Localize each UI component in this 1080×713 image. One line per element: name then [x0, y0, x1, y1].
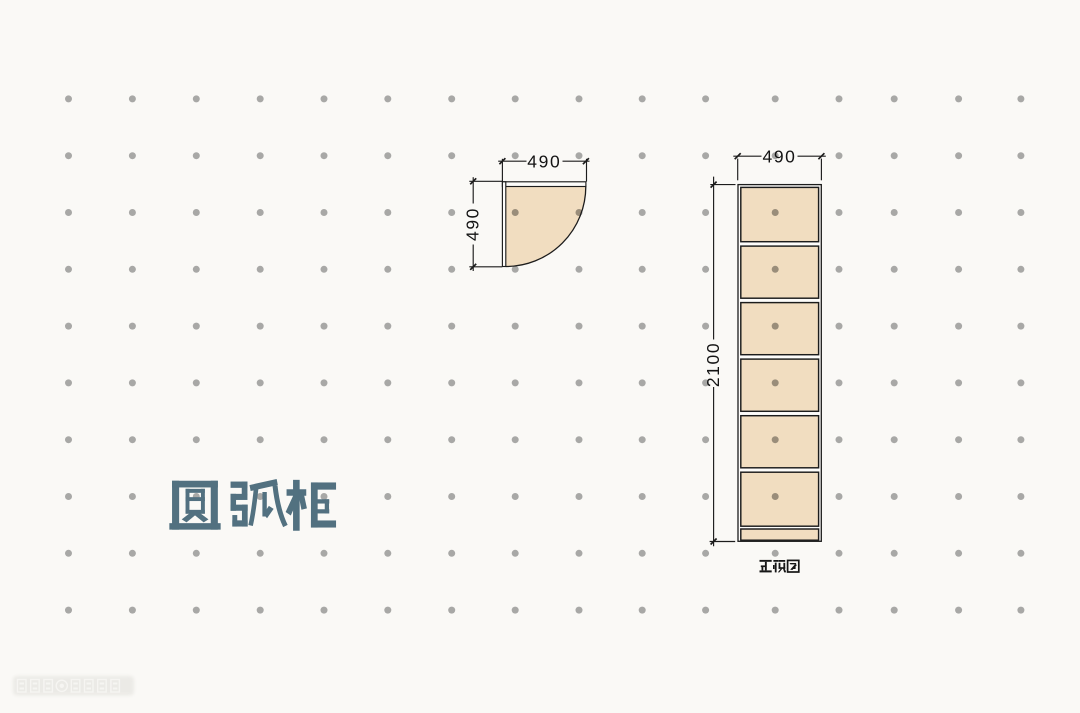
svg-text:490: 490	[763, 146, 797, 166]
svg-text:490: 490	[462, 207, 482, 241]
svg-text:490: 490	[527, 151, 561, 171]
svg-text:2100: 2100	[703, 342, 723, 387]
